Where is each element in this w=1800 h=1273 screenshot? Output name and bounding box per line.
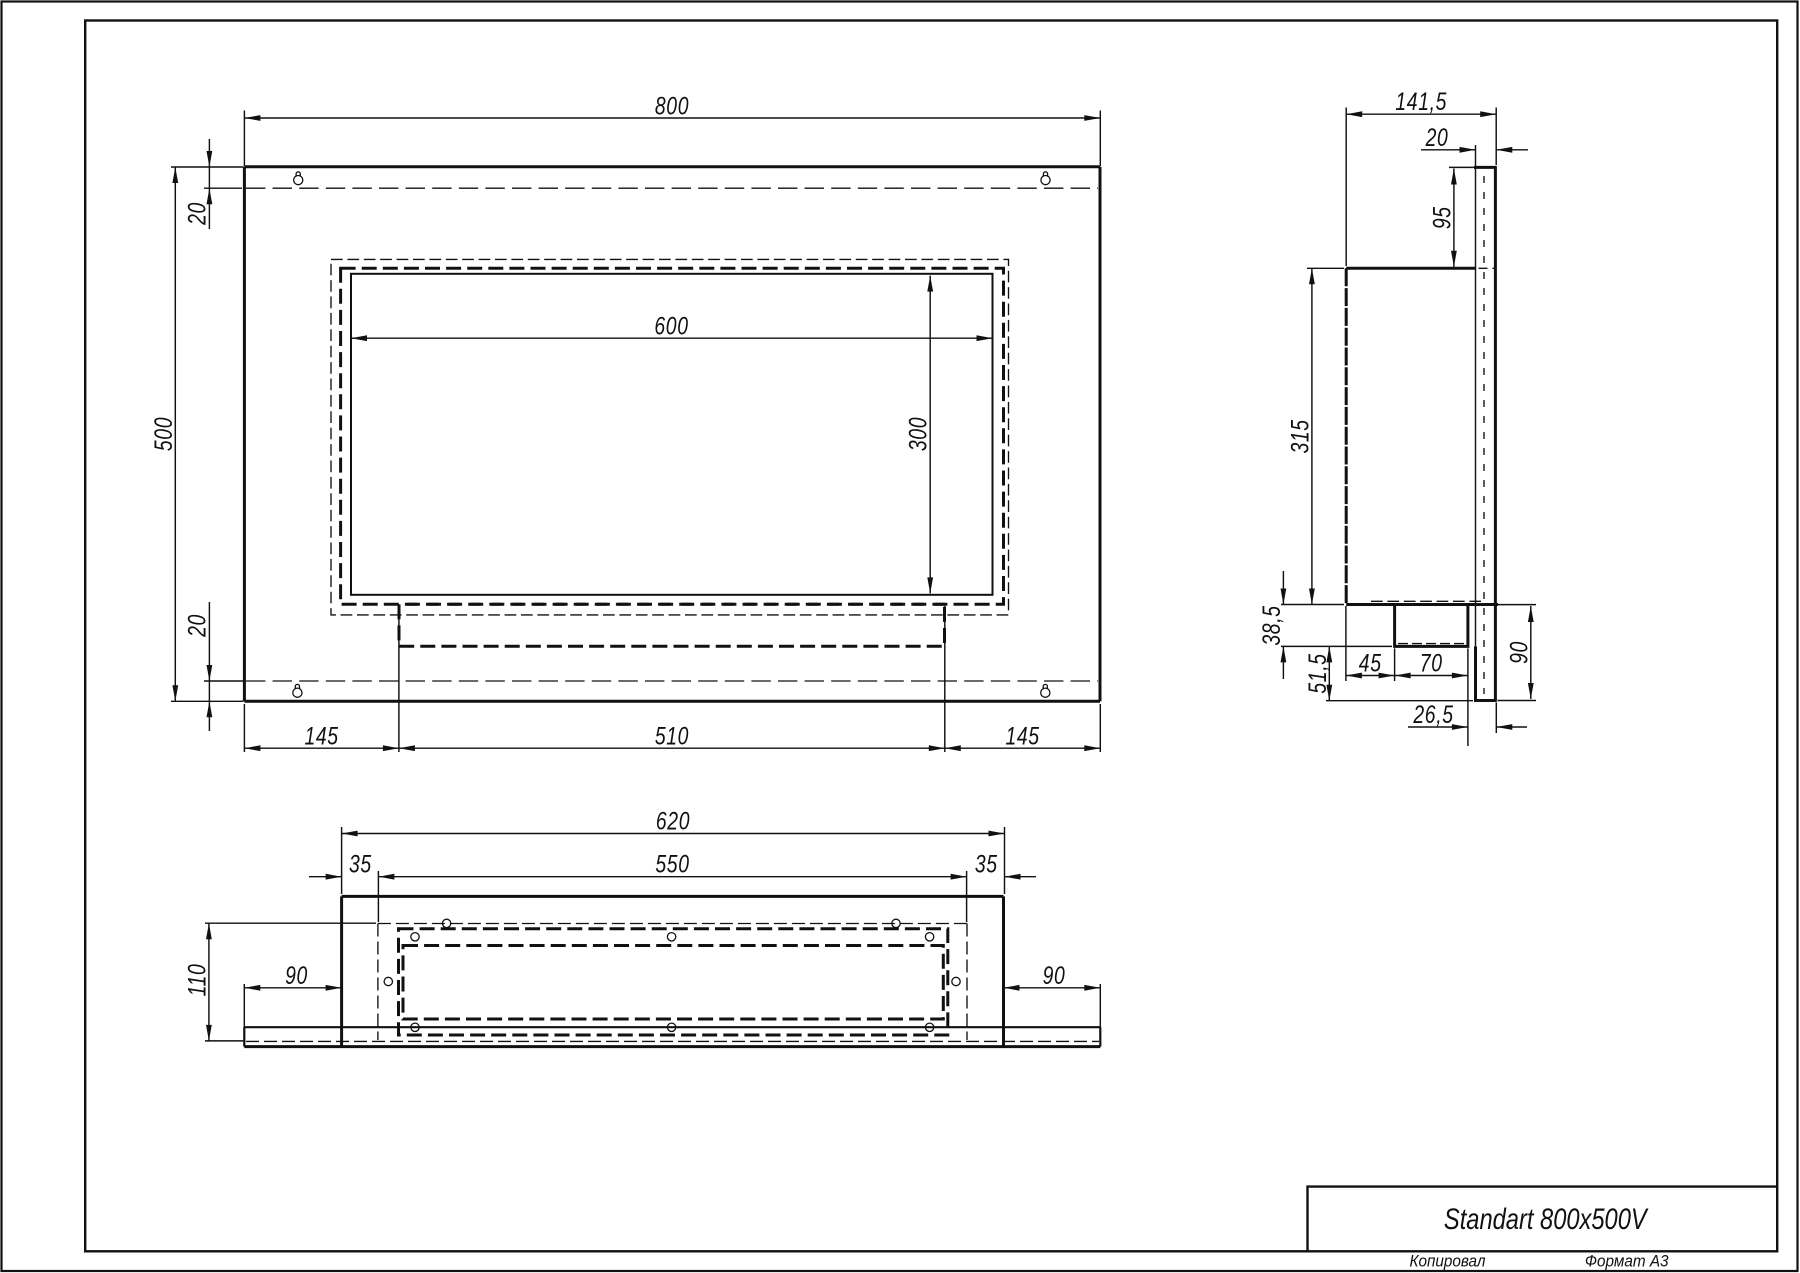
svg-text:95: 95: [1428, 206, 1456, 229]
svg-text:Standart 800x500V: Standart 800x500V: [1444, 1202, 1649, 1235]
svg-text:90: 90: [285, 961, 308, 989]
svg-text:20: 20: [1425, 123, 1449, 151]
svg-text:70: 70: [1420, 649, 1443, 677]
svg-text:38,5: 38,5: [1258, 605, 1286, 645]
svg-text:315: 315: [1286, 419, 1314, 453]
svg-text:145: 145: [305, 722, 339, 750]
svg-text:510: 510: [655, 722, 689, 750]
svg-text:35: 35: [349, 850, 372, 878]
svg-text:35: 35: [975, 850, 998, 878]
svg-text:300: 300: [904, 417, 932, 451]
svg-text:Формат А3: Формат А3: [1585, 1252, 1669, 1271]
svg-text:26,5: 26,5: [1413, 701, 1454, 729]
svg-text:51,5: 51,5: [1303, 653, 1331, 693]
svg-text:90: 90: [1505, 641, 1533, 664]
svg-text:620: 620: [656, 807, 690, 835]
svg-text:90: 90: [1043, 961, 1066, 989]
svg-text:20: 20: [183, 614, 211, 638]
svg-text:600: 600: [654, 312, 688, 340]
svg-text:500: 500: [149, 417, 177, 451]
svg-text:45: 45: [1359, 649, 1382, 677]
svg-text:20: 20: [183, 202, 211, 226]
svg-text:Копировал: Копировал: [1409, 1252, 1485, 1271]
svg-text:145: 145: [1006, 722, 1040, 750]
svg-text:550: 550: [655, 850, 689, 878]
svg-text:800: 800: [655, 92, 689, 120]
svg-text:110: 110: [183, 964, 211, 997]
svg-text:141,5: 141,5: [1395, 88, 1447, 116]
